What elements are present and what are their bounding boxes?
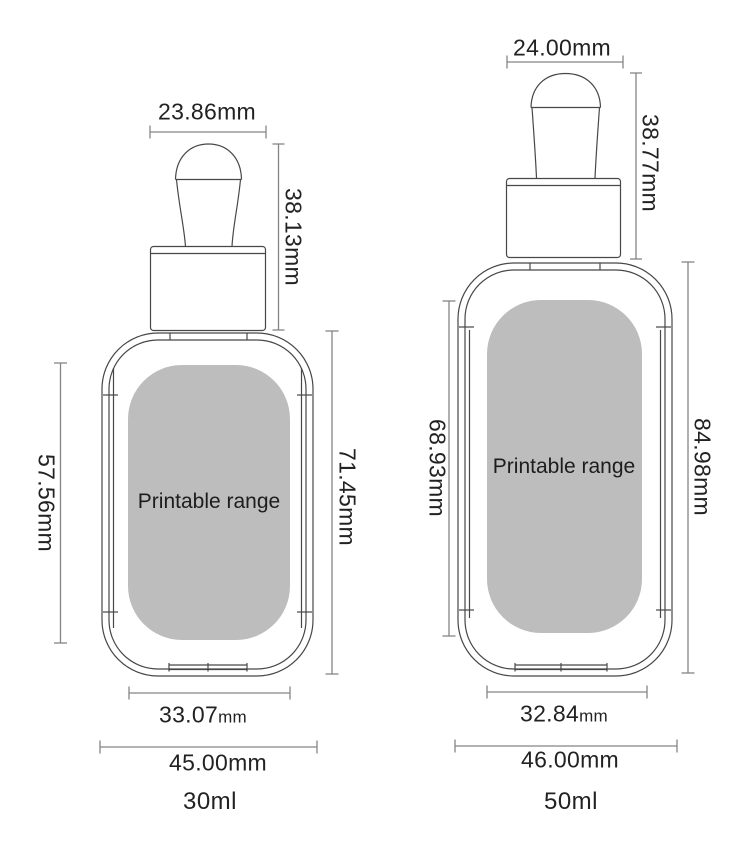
dim-dropper-height-50ml: 38.77mm — [637, 114, 664, 212]
dim-body-height-50ml: 84.98mm — [689, 418, 716, 516]
printable-range-label-50ml: Printable range — [493, 455, 635, 479]
dropper-30ml — [151, 144, 266, 331]
dim-printable-width-50ml: 32.84mm — [520, 701, 608, 728]
dim-printable-width-unit-50ml: mm — [579, 707, 608, 726]
dim-body-height-30ml: 71.45mm — [334, 448, 361, 546]
dim-printable-width-30ml: 33.07mm — [159, 702, 247, 729]
dropper-50ml — [507, 74, 621, 258]
dim-printable-width-value-30ml: 33.07 — [159, 702, 218, 728]
volume-label-30ml: 30ml — [183, 788, 237, 816]
dim-base-width-50ml: 46.00mm — [521, 747, 619, 774]
dim-top-width-50ml: 24.00mm — [513, 35, 611, 62]
dim-top-width-30ml: 23.86mm — [158, 99, 256, 126]
dim-printable-height-30ml: 57.56mm — [33, 454, 60, 552]
dim-printable-width-value-50ml: 32.84 — [520, 701, 579, 727]
printable-range-label-30ml: Printable range — [138, 490, 280, 514]
dim-dropper-height-30ml: 38.13mm — [280, 188, 307, 286]
dim-printable-height-50ml: 68.93mm — [424, 419, 451, 517]
dim-printable-width-unit-30ml: mm — [218, 708, 247, 727]
diagram-canvas: 23.86mm 38.13mm 57.56mm 71.45mm Printabl… — [0, 0, 750, 849]
volume-label-50ml: 50ml — [544, 788, 598, 816]
dim-base-width-30ml: 45.00mm — [169, 750, 267, 777]
